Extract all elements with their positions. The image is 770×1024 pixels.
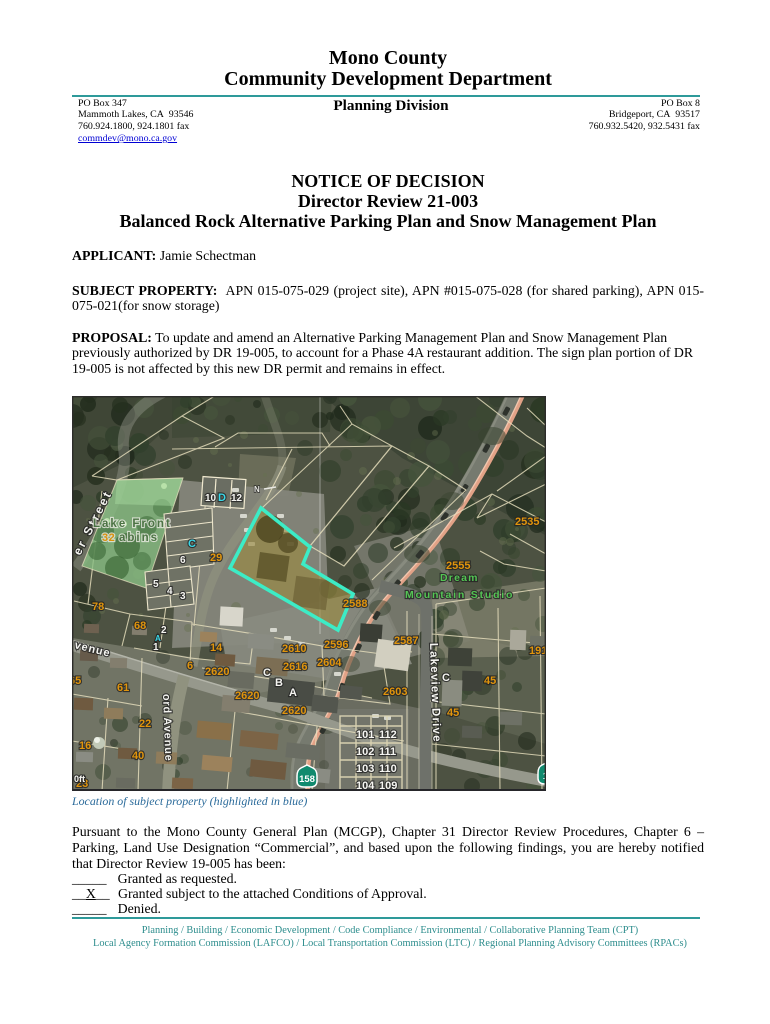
svg-text:C: C bbox=[188, 538, 196, 550]
svg-text:111: 111 bbox=[379, 746, 396, 758]
svg-text:158: 158 bbox=[299, 774, 315, 785]
svg-text:2620: 2620 bbox=[282, 705, 306, 717]
svg-text:16: 16 bbox=[79, 740, 91, 752]
svg-text:1: 1 bbox=[153, 642, 159, 653]
svg-text:40: 40 bbox=[132, 750, 144, 762]
svg-text:2620: 2620 bbox=[235, 690, 259, 702]
svg-text:abins: abins bbox=[119, 532, 159, 544]
svg-text:N: N bbox=[254, 485, 260, 494]
svg-text:102: 102 bbox=[356, 746, 374, 758]
svg-text:101: 101 bbox=[356, 729, 374, 741]
svg-text:0ft: 0ft bbox=[74, 774, 85, 784]
svg-text:2555: 2555 bbox=[446, 560, 470, 572]
svg-text:C: C bbox=[442, 672, 450, 684]
svg-text:Lake Front: Lake Front bbox=[93, 518, 172, 530]
svg-text:45: 45 bbox=[447, 707, 459, 719]
svg-text:B: B bbox=[275, 677, 283, 689]
svg-text:2588: 2588 bbox=[343, 598, 367, 610]
svg-text:68: 68 bbox=[134, 620, 146, 632]
svg-text:C: C bbox=[263, 667, 271, 679]
svg-text:78: 78 bbox=[92, 601, 104, 613]
svg-text:32: 32 bbox=[102, 532, 115, 544]
svg-text:110: 110 bbox=[379, 763, 397, 775]
svg-text:12: 12 bbox=[231, 493, 243, 504]
svg-text:Mountain Studio: Mountain Studio bbox=[405, 589, 514, 601]
svg-text:191: 191 bbox=[529, 645, 546, 657]
svg-text:112: 112 bbox=[379, 729, 397, 741]
svg-text:2535: 2535 bbox=[515, 516, 539, 528]
svg-text:6: 6 bbox=[180, 555, 186, 566]
svg-text:2620: 2620 bbox=[205, 666, 229, 678]
svg-text:4: 4 bbox=[167, 586, 173, 597]
svg-text:Dream: Dream bbox=[440, 572, 479, 584]
svg-text:5: 5 bbox=[153, 579, 159, 590]
svg-text:2587: 2587 bbox=[394, 635, 418, 647]
svg-text:2610: 2610 bbox=[282, 643, 306, 655]
svg-text:2604: 2604 bbox=[317, 657, 342, 669]
svg-text:3: 3 bbox=[180, 591, 186, 602]
svg-text:10: 10 bbox=[205, 493, 217, 504]
svg-text:6: 6 bbox=[187, 660, 193, 672]
svg-text:45: 45 bbox=[484, 675, 496, 687]
svg-text:103: 103 bbox=[356, 763, 374, 775]
svg-text:22: 22 bbox=[139, 718, 151, 730]
svg-text:2616: 2616 bbox=[283, 661, 307, 673]
svg-text:ord Avenue: ord Avenue bbox=[160, 694, 174, 762]
svg-text:A: A bbox=[289, 687, 297, 699]
svg-text:2596: 2596 bbox=[324, 639, 348, 651]
svg-text:61: 61 bbox=[117, 682, 129, 694]
svg-text:14: 14 bbox=[210, 642, 223, 654]
svg-text:2603: 2603 bbox=[383, 686, 407, 698]
svg-text:D: D bbox=[218, 492, 226, 504]
svg-text:29: 29 bbox=[210, 552, 222, 564]
svg-text:2: 2 bbox=[161, 625, 167, 636]
